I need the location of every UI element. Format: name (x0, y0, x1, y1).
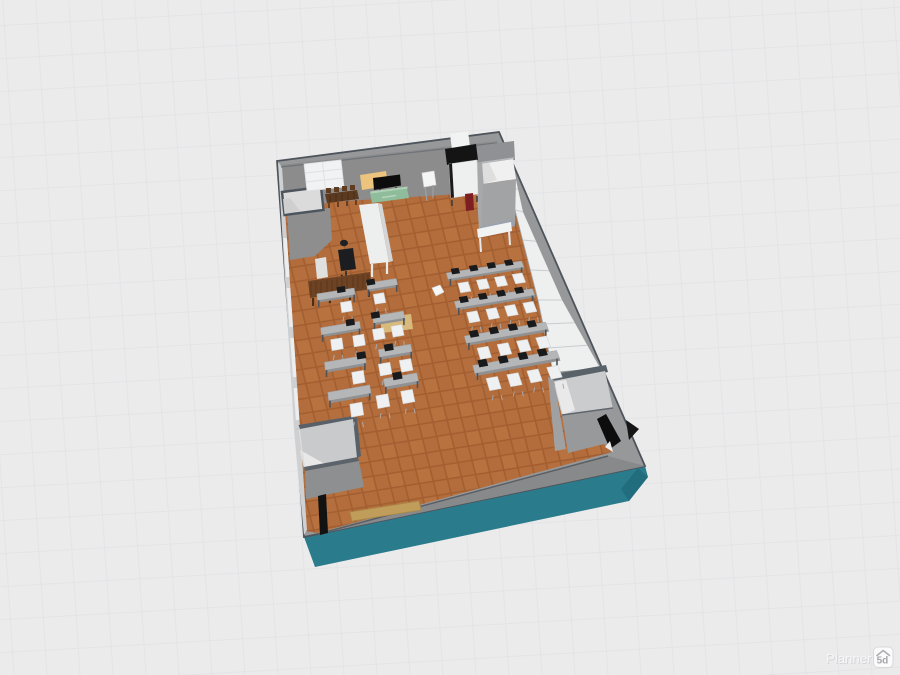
svg-text:Planner: Planner (826, 651, 872, 666)
svg-text:5d: 5d (877, 656, 889, 667)
